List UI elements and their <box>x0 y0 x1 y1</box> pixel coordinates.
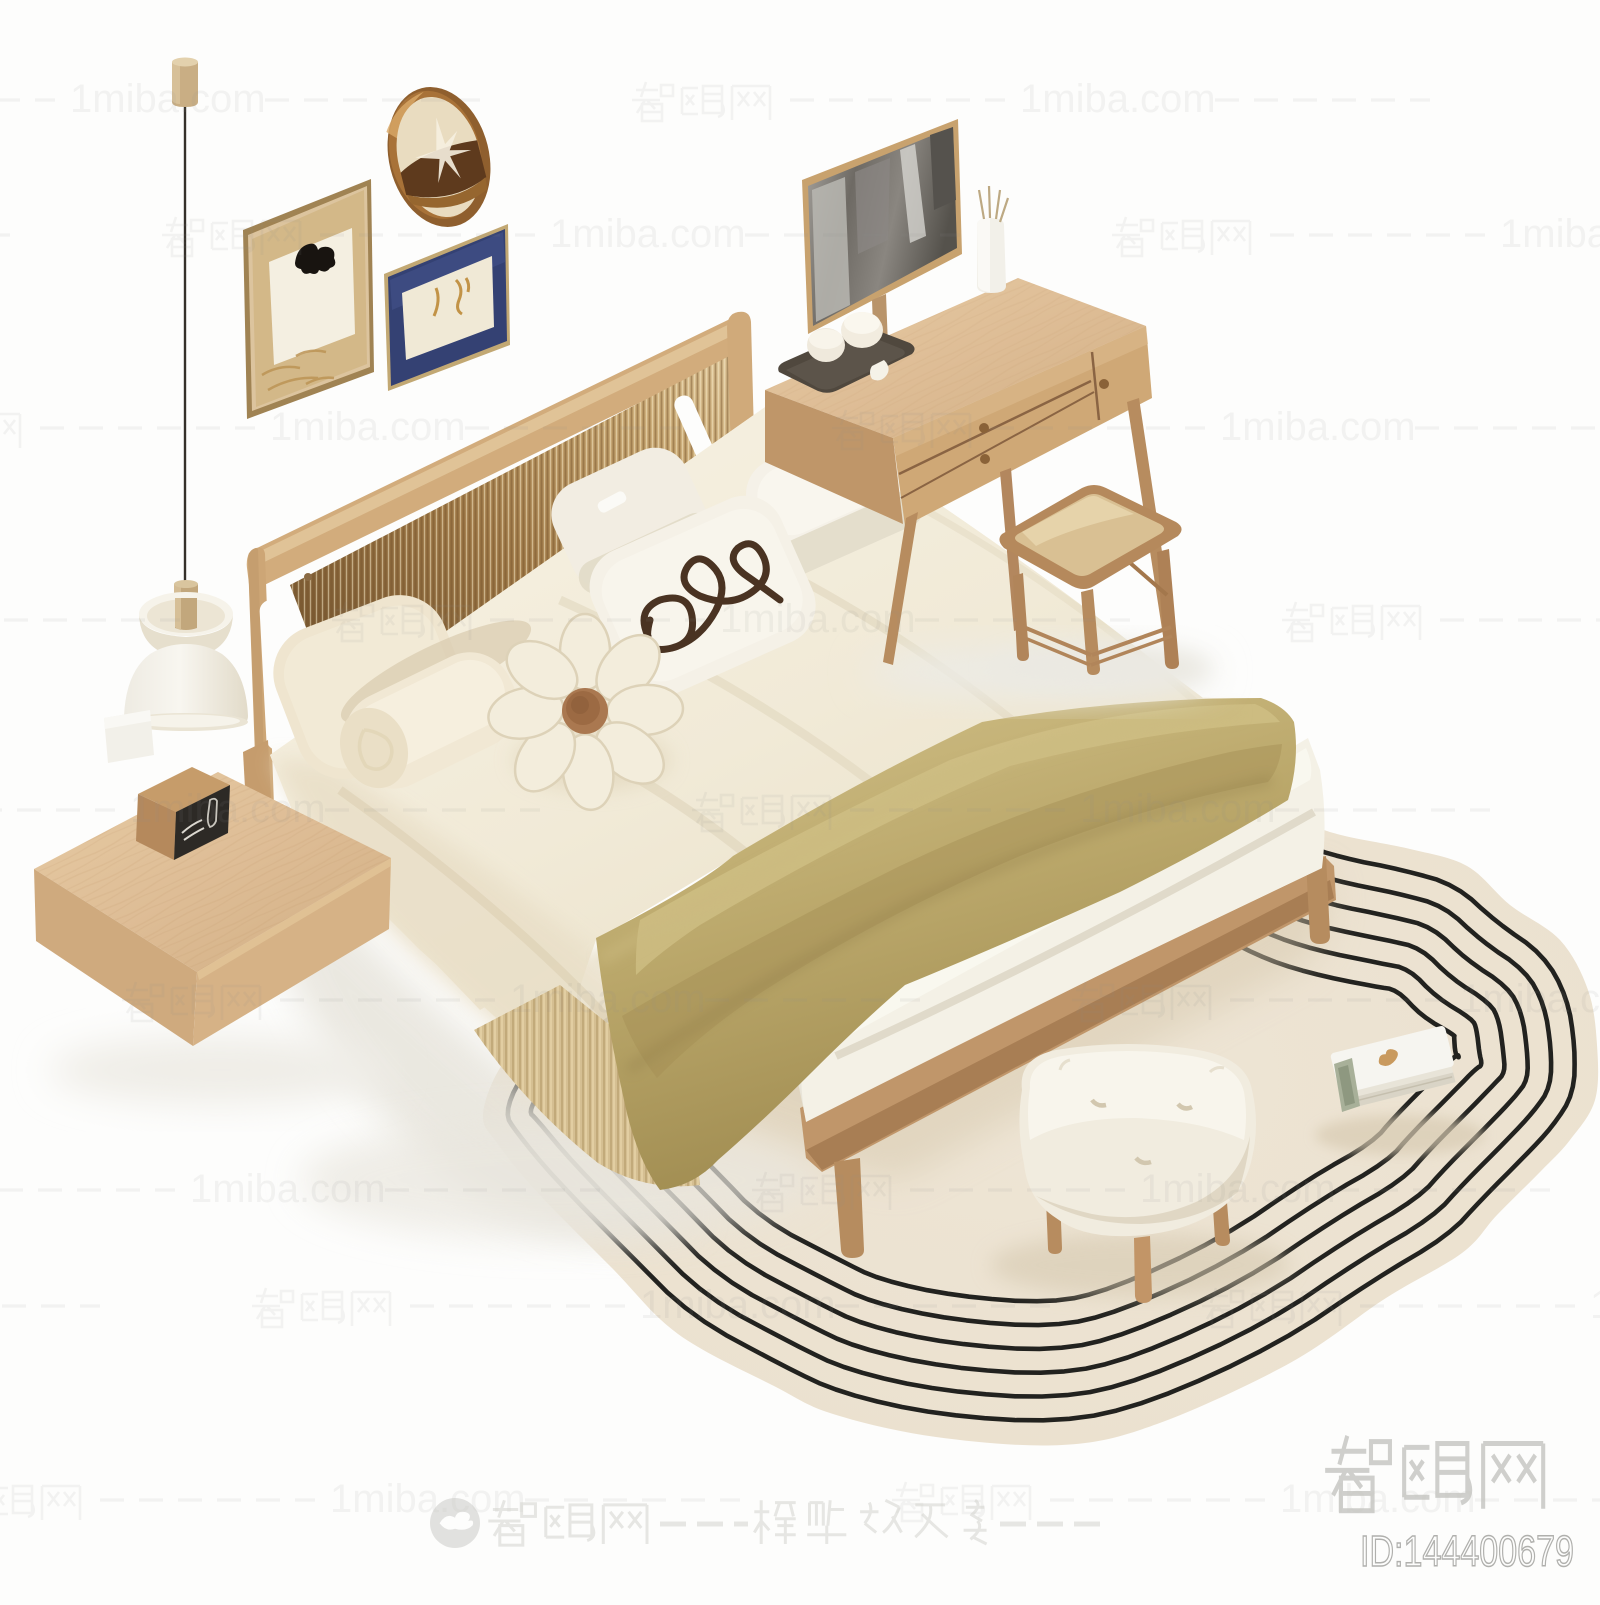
svg-text:1miba.com: 1miba.com <box>1020 77 1216 121</box>
svg-text:1miba.com: 1miba.com <box>510 977 706 1021</box>
svg-text:1miba.com: 1miba.com <box>1140 1167 1336 1211</box>
svg-text:1miba.com: 1miba.com <box>1500 212 1600 256</box>
svg-text:1miba.com: 1miba.com <box>1460 977 1600 1021</box>
svg-text:1miba.com: 1miba.com <box>1220 405 1416 449</box>
svg-text:1miba.com: 1miba.com <box>130 787 326 831</box>
svg-text:1miba.com: 1miba.com <box>70 77 266 121</box>
svg-text:1miba.com: 1miba.com <box>190 1167 386 1211</box>
svg-text:1miba.com: 1miba.com <box>270 405 466 449</box>
svg-text:1miba.com: 1miba.com <box>720 597 916 641</box>
svg-text:1miba.com: 1miba.com <box>330 1477 526 1521</box>
svg-text:1miba.com: 1miba.com <box>1080 787 1276 831</box>
svg-text:1miba.com: 1miba.com <box>1280 1477 1476 1521</box>
svg-text:ID:144400679: ID:144400679 <box>1360 1527 1574 1576</box>
svg-text:1miba.com: 1miba.com <box>1590 1283 1600 1327</box>
svg-text:1miba.com: 1miba.com <box>640 1283 836 1327</box>
svg-text:1miba.com: 1miba.com <box>550 212 746 256</box>
